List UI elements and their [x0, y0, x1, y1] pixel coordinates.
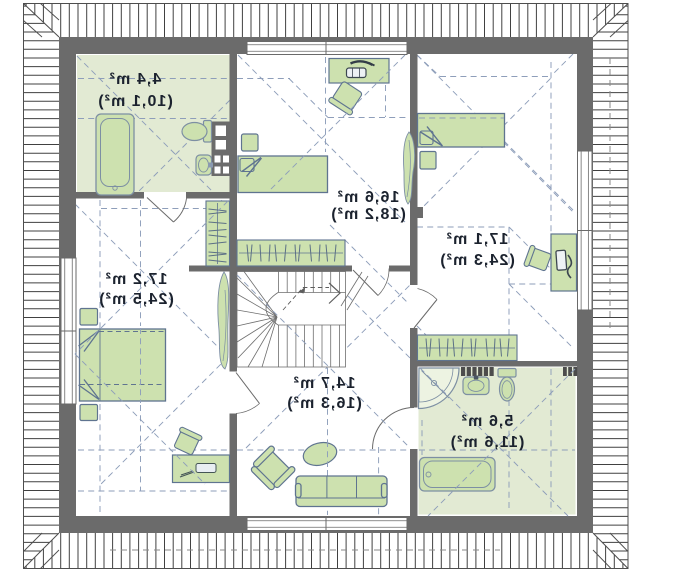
svg-text:17,1 m²: 17,1 m² — [446, 231, 509, 248]
svg-text:17,2 m²: 17,2 m² — [105, 271, 168, 288]
svg-text:(24,5 m²): (24,5 m²) — [98, 291, 174, 308]
svg-text:(18,2 m²): (18,2 m²) — [330, 206, 406, 223]
svg-text:(11,6 m²): (11,6 m²) — [450, 434, 525, 451]
svg-text:5,6 m²: 5,6 m² — [461, 413, 514, 430]
svg-text:(16,3 m²): (16,3 m²) — [286, 395, 362, 412]
svg-text:16,6 m²: 16,6 m² — [337, 189, 400, 206]
svg-text:14,7 m²: 14,7 m² — [293, 375, 356, 392]
svg-text:(24,3 m²): (24,3 m²) — [439, 252, 515, 269]
svg-text:4,4 m²: 4,4 m² — [109, 71, 162, 88]
svg-text:(10,1 m²): (10,1 m²) — [97, 93, 173, 110]
